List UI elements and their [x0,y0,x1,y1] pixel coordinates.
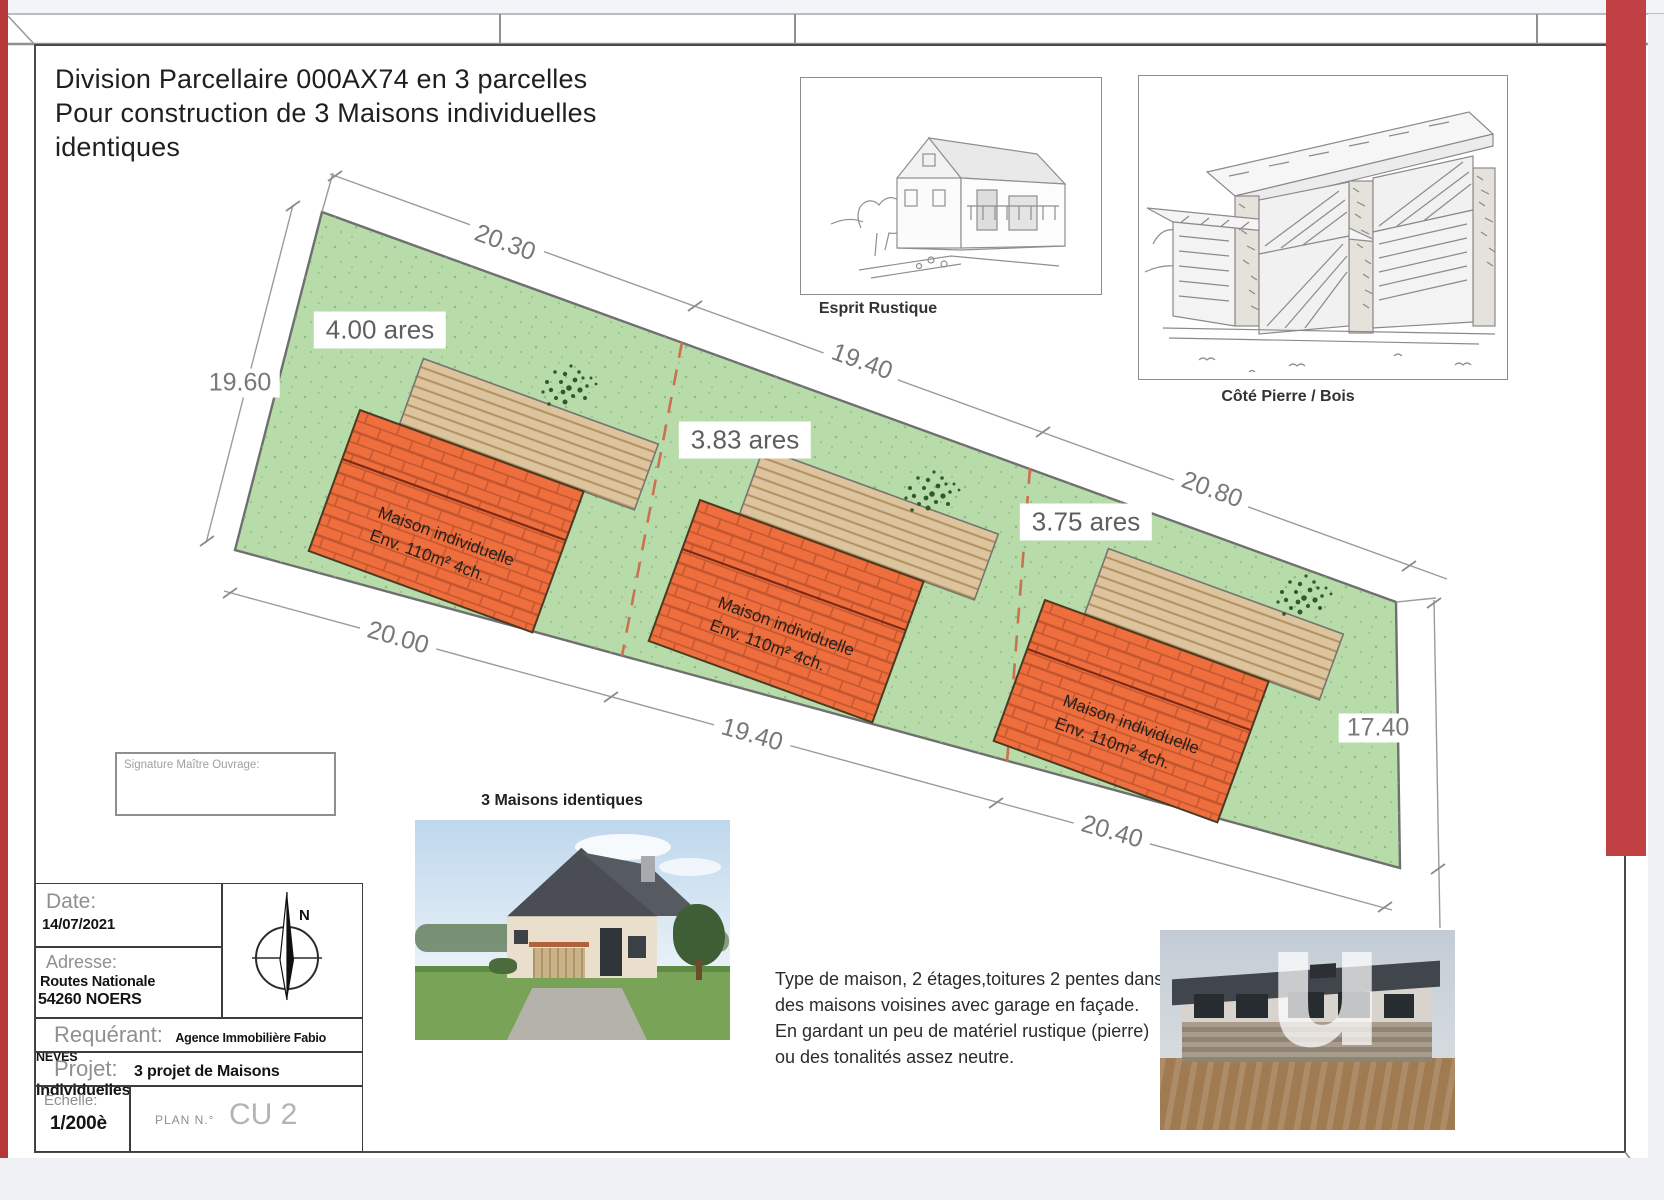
adresse-line2: 54260 NOERS [36,990,221,1009]
titleblock-date-cell: Date: 14/07/2021 [35,883,222,947]
titleblock-adresse-cell: Adresse: Routes Nationale 54260 NOERS [35,947,222,1018]
title-line-3: identiques [55,130,597,164]
sketch-caption-rustique: Esprit Rustique [819,300,937,318]
description-line-4: ou des tonalités assez neutre. [775,1044,1225,1070]
sketch-caption-pierre-bois: Côté Pierre / Bois [1221,388,1354,406]
parcel-3-area-label: 3.75 ares [1020,504,1152,541]
date-label: Date: [36,884,221,914]
plan-no-value: CU 2 [219,1098,297,1131]
house-photo-identiques [415,820,730,1040]
plan-no-label: PLAN N.° [131,1087,214,1127]
description-line-1: Type de maison, 2 étages,toitures 2 pent… [775,966,1225,992]
title-line-2: Pour construction de 3 Maisons individue… [55,96,597,130]
date-value: 14/07/2021 [36,914,221,933]
scan-artifact-top-band [0,0,1664,46]
titleblock-requerant-row: Requérant: Agence Immobilière Fabio NEVE… [35,1018,363,1052]
scan-red-right-bar [1606,0,1646,856]
house-type-description: Type de maison, 2 étages,toitures 2 pent… [775,966,1225,1070]
adresse-label: Adresse: [36,948,221,973]
echelle-value: 1/200è [36,1109,129,1135]
north-label: N [299,907,310,924]
scan-right-margin [1648,14,1664,1158]
signature-label: Signature Maître Ouvrage: [117,754,334,771]
projet-label: Projet: [36,1053,118,1082]
dim-right-side: 17.40 [1339,714,1418,743]
sketch-cote-pierre-bois [1138,75,1508,380]
title-line-1: Division Parcellaire 000AX74 en 3 parcel… [55,62,597,96]
titleblock-projet-row: Projet: 3 projet de Maisons individuelle… [35,1052,363,1086]
modern-stone-house-photo: u [1160,930,1455,1130]
rustic-house-sketch [801,78,1101,294]
titleblock-echelle-cell: Échelle: 1/200è [35,1086,130,1152]
requerant-label: Requérant: [36,1019,163,1048]
scan-bottom-margin [0,1158,1664,1200]
description-line-2: des maisons voisines avec garage en faça… [775,992,1225,1018]
titleblock-compass-cell: N [222,883,363,1018]
scanned-plan-page: Division Parcellaire 000AX74 en 3 parcel… [0,0,1664,1200]
stone-wood-house-sketch [1139,76,1507,379]
titleblock-planno-cell: PLAN N.° CU 2 [130,1086,363,1152]
north-compass-icon: N [223,884,361,1016]
watermark-letter: u [1265,930,1386,1072]
signature-box: Signature Maître Ouvrage: [115,752,336,816]
sketch-esprit-rustique [800,77,1102,295]
photo-caption-identiques: 3 Maisons identiques [481,792,643,810]
parcel-2-area-label: 3.83 ares [679,422,811,459]
dim-left-side: 19.60 [201,369,280,398]
plan-title: Division Parcellaire 000AX74 en 3 parcel… [55,62,597,164]
parcel-1-area-label: 4.00 ares [314,312,446,349]
description-line-3: En gardant un peu de matériel rustique (… [775,1018,1225,1044]
echelle-label: Échelle: [36,1087,129,1109]
adresse-line1: Routes Nationale [36,973,221,990]
scan-red-left-edge [0,0,8,1158]
